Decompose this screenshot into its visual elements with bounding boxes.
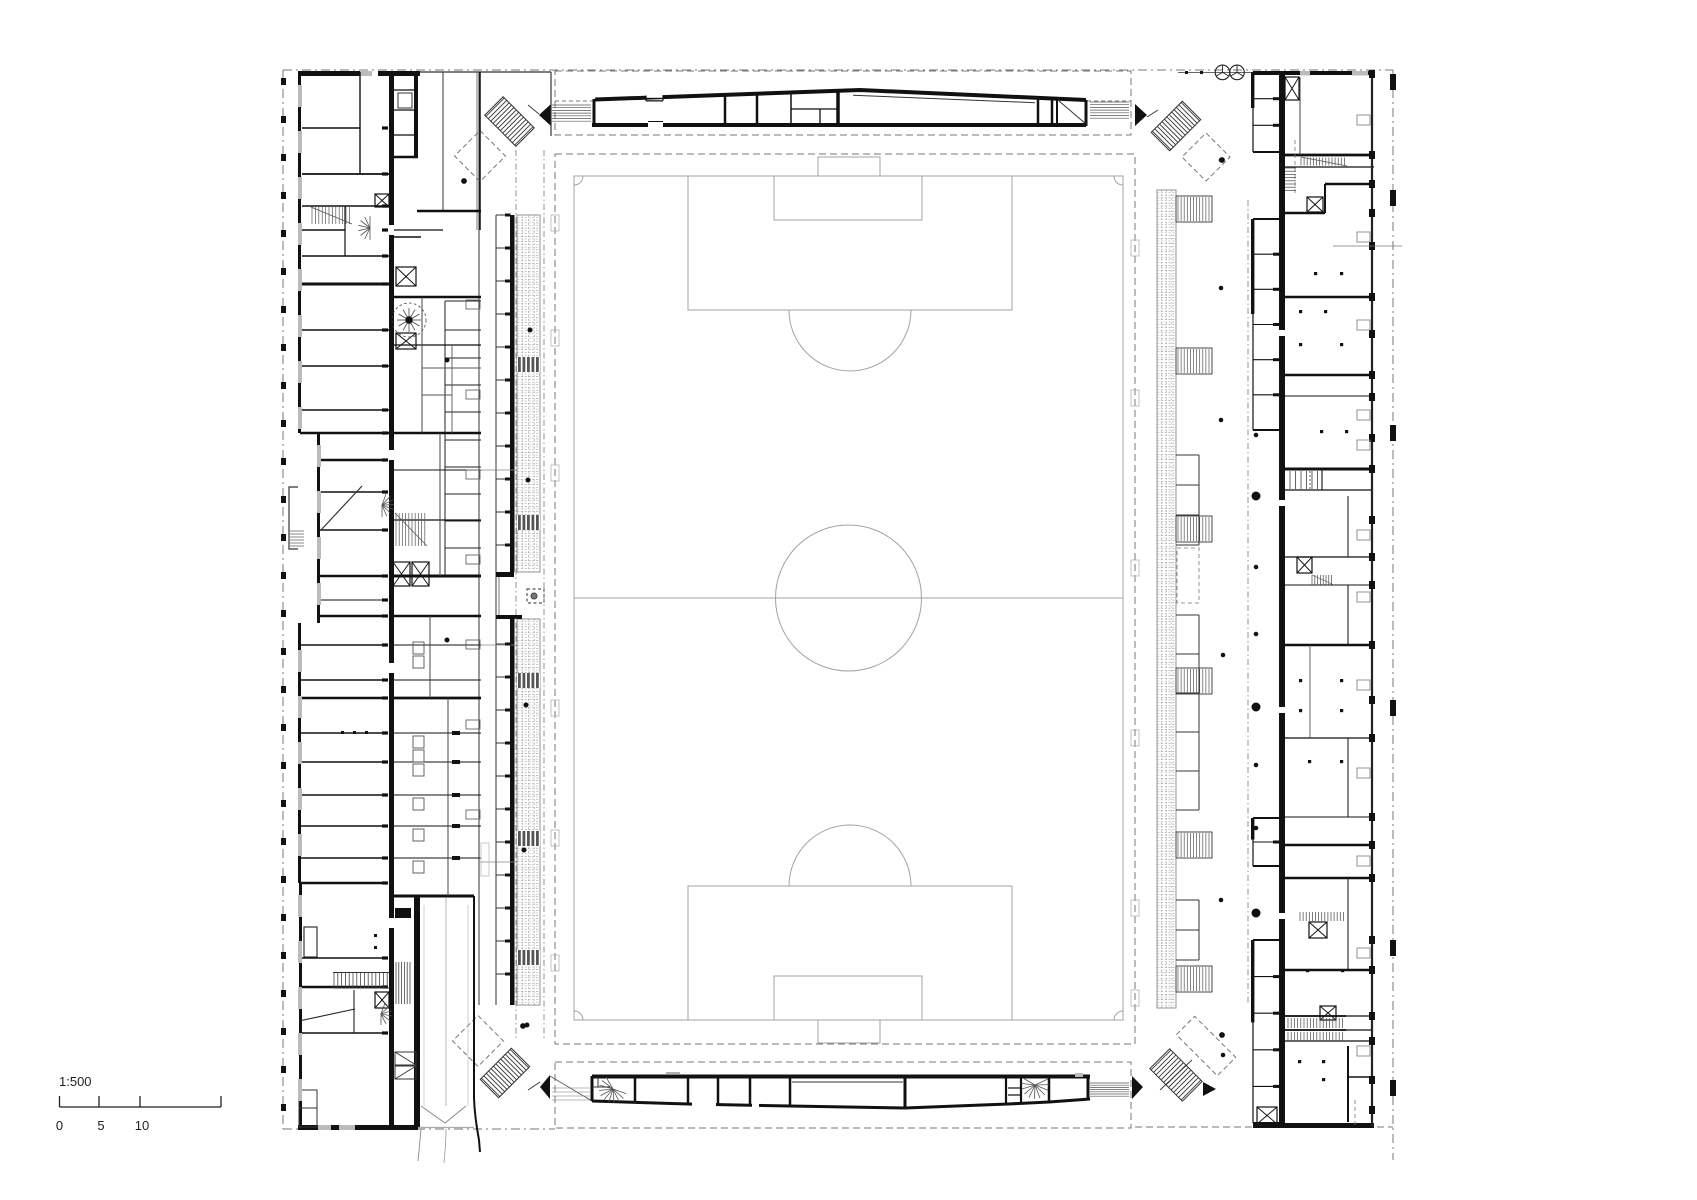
svg-text:10: 10 bbox=[135, 1118, 149, 1133]
svg-text:0: 0 bbox=[56, 1118, 63, 1133]
svg-text:1:500: 1:500 bbox=[59, 1074, 92, 1089]
svg-text:5: 5 bbox=[97, 1118, 104, 1133]
